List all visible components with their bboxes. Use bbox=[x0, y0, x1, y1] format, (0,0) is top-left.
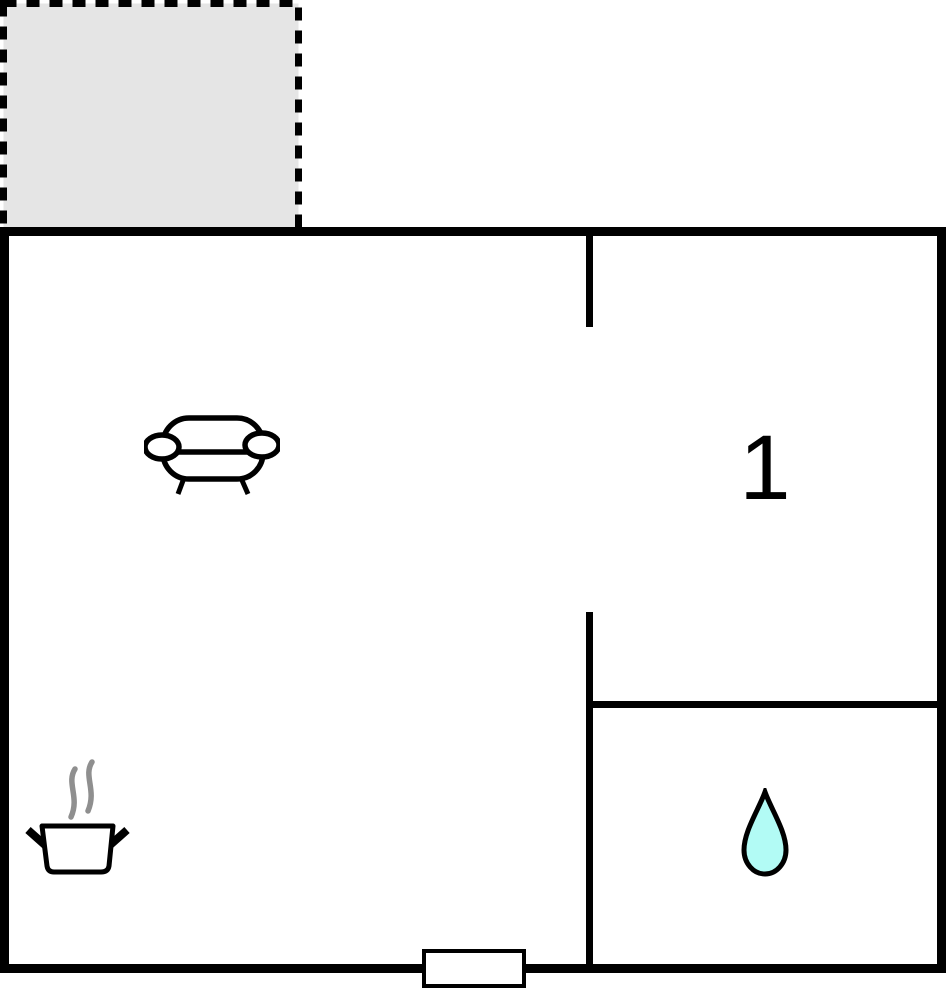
pot-body bbox=[42, 826, 113, 872]
cooking-pot-icon bbox=[25, 757, 130, 877]
water-drop-shape bbox=[744, 792, 786, 874]
steam-line-left bbox=[71, 769, 75, 817]
terrace-dashed-outline bbox=[4, 4, 299, 233]
floor-plan: 1 bbox=[0, 0, 946, 1000]
water-drop-icon bbox=[739, 788, 791, 878]
sofa-icon bbox=[144, 414, 280, 496]
bedroom-number-label: 1 bbox=[690, 405, 840, 530]
entrance-door bbox=[422, 949, 526, 988]
steam-line-right bbox=[88, 762, 92, 811]
interior-wall-vertical-upper bbox=[586, 236, 593, 327]
sofa-armrest-left bbox=[145, 435, 179, 459]
interior-wall-vertical-lower bbox=[586, 612, 593, 964]
sofa-leg-left bbox=[178, 478, 184, 494]
sofa-leg-right bbox=[241, 478, 248, 494]
interior-wall-bathroom bbox=[593, 701, 937, 708]
apartment-outline bbox=[0, 227, 946, 973]
terrace-area bbox=[0, 0, 302, 234]
sofa-armrest-right bbox=[245, 433, 279, 457]
